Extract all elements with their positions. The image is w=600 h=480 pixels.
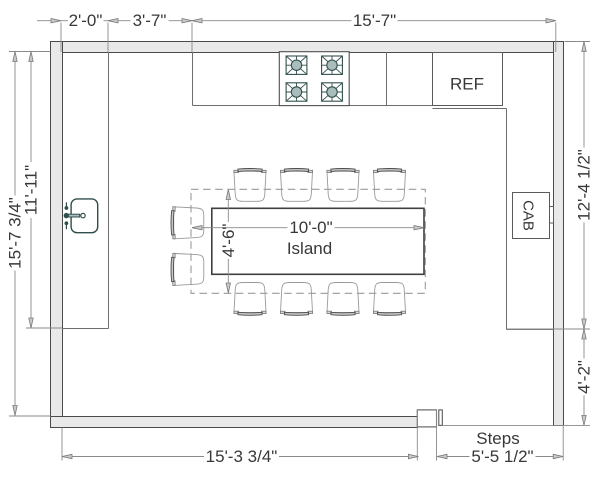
- svg-text:4'-6": 4'-6": [219, 224, 238, 258]
- svg-text:5'-5 1/2": 5'-5 1/2": [471, 447, 533, 466]
- svg-text:2'-0": 2'-0": [69, 11, 103, 30]
- svg-text:15'-7": 15'-7": [353, 11, 396, 30]
- svg-text:10'-0": 10'-0": [289, 218, 332, 237]
- svg-text:Island: Island: [287, 239, 332, 258]
- svg-text:3'-7": 3'-7": [133, 11, 167, 30]
- svg-text:CAB: CAB: [520, 200, 537, 231]
- svg-text:12'-4 1/2": 12'-4 1/2": [575, 149, 594, 221]
- svg-text:15'-3 3/4": 15'-3 3/4": [206, 447, 278, 466]
- svg-text:Steps: Steps: [476, 429, 519, 448]
- svg-text:11'-11": 11'-11": [22, 165, 41, 215]
- svg-text:REF: REF: [450, 75, 484, 94]
- svg-text:4'-2": 4'-2": [575, 360, 594, 394]
